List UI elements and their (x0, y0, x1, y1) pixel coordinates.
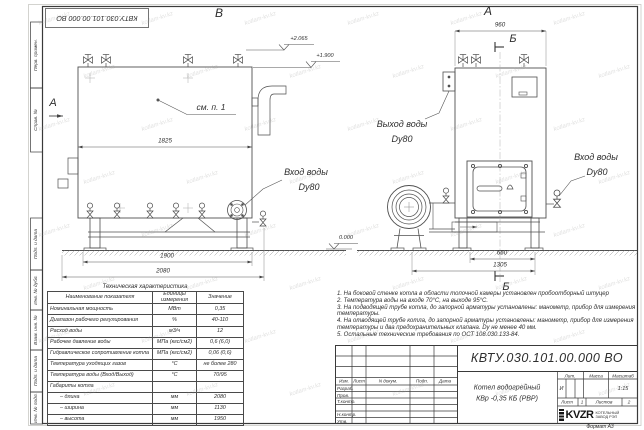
title-block-doc-number: КВТУ.030.101.00.000 ВО (471, 351, 623, 365)
frame-label-podp-data-2: Подп. и дата (33, 350, 41, 392)
spec-table-cell: – высота (48, 415, 153, 426)
stamp-row-razrab: Разраб. (337, 386, 354, 391)
spec-table-cell: 0,06 (0,6) (197, 348, 244, 359)
stamp-col-data: Дата (439, 379, 451, 384)
water-inlet-dn-side: Dy80 (586, 167, 607, 177)
water-inlet-label-front: Вход воды (284, 167, 328, 177)
technical-note: 1. На боковой стенке котла в области топ… (337, 291, 640, 297)
spec-table-cell: – длина (48, 393, 153, 404)
dim-1305: 1305 (493, 262, 507, 269)
spec-table-cell: 70/95 (197, 370, 244, 381)
stamp-col-dokum: N докум. (379, 379, 398, 384)
stamp-lit-label: Лит. (565, 373, 576, 378)
spec-table-row: Номинальная мощностьМВт0,35 (48, 304, 244, 315)
spec-table-cell: – ширина (48, 404, 153, 415)
spec-table-cell: Габариты котла (48, 382, 153, 393)
technical-note: 5. Остальные технические требования по О… (337, 332, 640, 338)
stamp-col-izm: Изм. (339, 379, 349, 384)
stamp-sheets-value: 2 (628, 400, 631, 405)
spec-table-cell: °С (153, 370, 197, 381)
stamp-row-utv: Утв. (337, 419, 347, 424)
spec-table-cell: 40-110 (197, 315, 244, 326)
stamp-scale-value: 1:15 (618, 386, 629, 392)
spec-table-row: Температура уходящих газов°Сне более 280 (48, 359, 244, 370)
stamp-sheet-value: 1 (581, 400, 584, 405)
product-name-line1: Котел водогрейный (474, 385, 541, 392)
stamp-mass-label: Масса (589, 373, 603, 378)
spec-table-cell: Диапазон рабочего регулирования (48, 315, 153, 326)
format-label: Формат А3 (586, 424, 613, 430)
stamp-col-podp: Подп. (416, 379, 428, 384)
spec-table-cell: мм (153, 393, 197, 404)
spec-table-row: – высотамм1950 (48, 415, 244, 426)
spec-table-title: Техническая характеристика (47, 284, 243, 290)
spec-table-cell: Расход воды (48, 326, 153, 337)
section-a-label: А (49, 97, 56, 109)
frame-label-inv-dubl: Инв. № дубл. (33, 270, 41, 310)
spec-table-cell: Температура уходящих газов (48, 359, 153, 370)
stamp-row-tkontr: Т.контр. (337, 399, 356, 404)
dim-2080: 2080 (156, 268, 170, 275)
frame-label-sprav: Справ. № (33, 88, 41, 152)
spec-table-cell: 1130 (197, 404, 244, 415)
stamp-sheets-label: Листов (596, 400, 613, 405)
spec-table-cell: мм (153, 404, 197, 415)
logo-bar-icon (559, 409, 564, 421)
frame-label-inv-podl: Инв. № подл. (33, 392, 41, 424)
spec-table-cell: °С (153, 359, 197, 370)
spec-table-row: – длинамм2080 (48, 393, 244, 404)
technical-note: 2. Температура воды на входе 70°С, на вы… (337, 298, 640, 304)
section-b-label-top: Б (509, 33, 516, 45)
stamp-row-nkontr: Н.контр. (337, 412, 356, 417)
stamp-col-list: Лист (353, 379, 365, 384)
spec-table-cell: Рабочее давление воды (48, 337, 153, 348)
frame-label-perv-primen: Перв. примен. (33, 22, 41, 88)
spec-col-name: Наименование показателя (48, 292, 153, 304)
top-stamp-doc-number: КВТУ.030.101.00.000 ВО (47, 14, 147, 23)
spec-table-row: Рабочее давление водыМПа (кгс/см2)0,6 (6… (48, 337, 244, 348)
drawing-sheet: Перв. примен. Справ. № Подп. и дата Инв.… (0, 0, 644, 430)
spec-table-cell: % (153, 315, 197, 326)
see-note-callout: см. п. 1 (197, 102, 226, 112)
frame-label-vzam-inv: Взам. инв. № (33, 310, 41, 350)
dim-660: 660 (497, 250, 507, 257)
dim-1900: 1900 (160, 253, 174, 260)
spec-table-cell (197, 382, 244, 393)
spec-table: Техническая характеристика Наименование … (47, 284, 243, 426)
spec-col-value: Значение (197, 292, 244, 304)
spec-table-cell: 12 (197, 326, 244, 337)
spec-table-row: Габариты котла (48, 382, 244, 393)
technical-notes: 1. На боковой стенке котла в области топ… (337, 291, 640, 339)
spec-table-cell: 2080 (197, 393, 244, 404)
view-label-front: В (215, 6, 223, 20)
spec-table-cell: м3/ч (153, 326, 197, 337)
spec-table-cell: МПа (кгс/см2) (153, 348, 197, 359)
spec-table-cell: Температура воды (Вход/Выход) (48, 370, 153, 381)
logo-caption: КОТЕЛЬНЫЙ ЗАВОД РЭП (595, 411, 619, 420)
manufacturer-logo: KVZR КОТЕЛЬНЫЙ ЗАВОД РЭП (559, 407, 637, 423)
spec-table-cell: Гидравлическое сопротивление котла (48, 348, 153, 359)
water-inlet-dn-front: Dy80 (298, 182, 319, 192)
spec-table-cell: 0,35 (197, 304, 244, 315)
technical-note: 3. На подводящей трубе котла, до запорно… (337, 305, 640, 318)
dim-960: 960 (495, 22, 505, 29)
spec-col-units: Единицы измерения (153, 292, 197, 304)
logo-text: KVZR (566, 409, 594, 421)
frame-label-podp-data-1: Подп. и дата (33, 218, 41, 270)
stamp-sheet-label: Лист (561, 400, 573, 405)
spec-table-cell: Номинальная мощность (48, 304, 153, 315)
level-body-top: +1.900 (316, 53, 333, 59)
water-outlet-dn: Dy80 (391, 134, 412, 144)
stamp-scale-label: Масштаб (612, 373, 633, 378)
spec-table-row: – ширинамм1130 (48, 404, 244, 415)
spec-table-cell: МПа (кгс/см2) (153, 337, 197, 348)
spec-table-row: Температура воды (Вход/Выход)°С70/95 (48, 370, 244, 381)
spec-table-cell (153, 382, 197, 393)
spec-table-cell: 1950 (197, 415, 244, 426)
spec-table-row: Гидравлическое сопротивление котлаМПа (к… (48, 348, 244, 359)
stamp-row-prov: Пров. (337, 393, 349, 398)
level-valves-top: +2.065 (290, 36, 307, 42)
spec-table-cell: не более 280 (197, 359, 244, 370)
dim-1825: 1825 (158, 138, 172, 145)
spec-table-row: Диапазон рабочего регулирования%40-110 (48, 315, 244, 326)
technical-note: 4. На отводящей трубе котла, до запорной… (337, 318, 640, 331)
spec-table-cell: МВт (153, 304, 197, 315)
spec-table-row: Расход водым3/ч12 (48, 326, 244, 337)
spec-table-cell: 0,6 (6,0) (197, 337, 244, 348)
spec-table-cell: мм (153, 415, 197, 426)
stamp-lit-value: И (560, 386, 564, 392)
water-inlet-label-side: Вход воды (574, 152, 618, 162)
level-ground: 0.000 (339, 235, 353, 241)
product-name-line2: КВр -0,35 КБ (РВР) (476, 396, 538, 403)
view-label-side: А (484, 4, 492, 18)
water-outlet-label: Выход воды (377, 119, 428, 129)
